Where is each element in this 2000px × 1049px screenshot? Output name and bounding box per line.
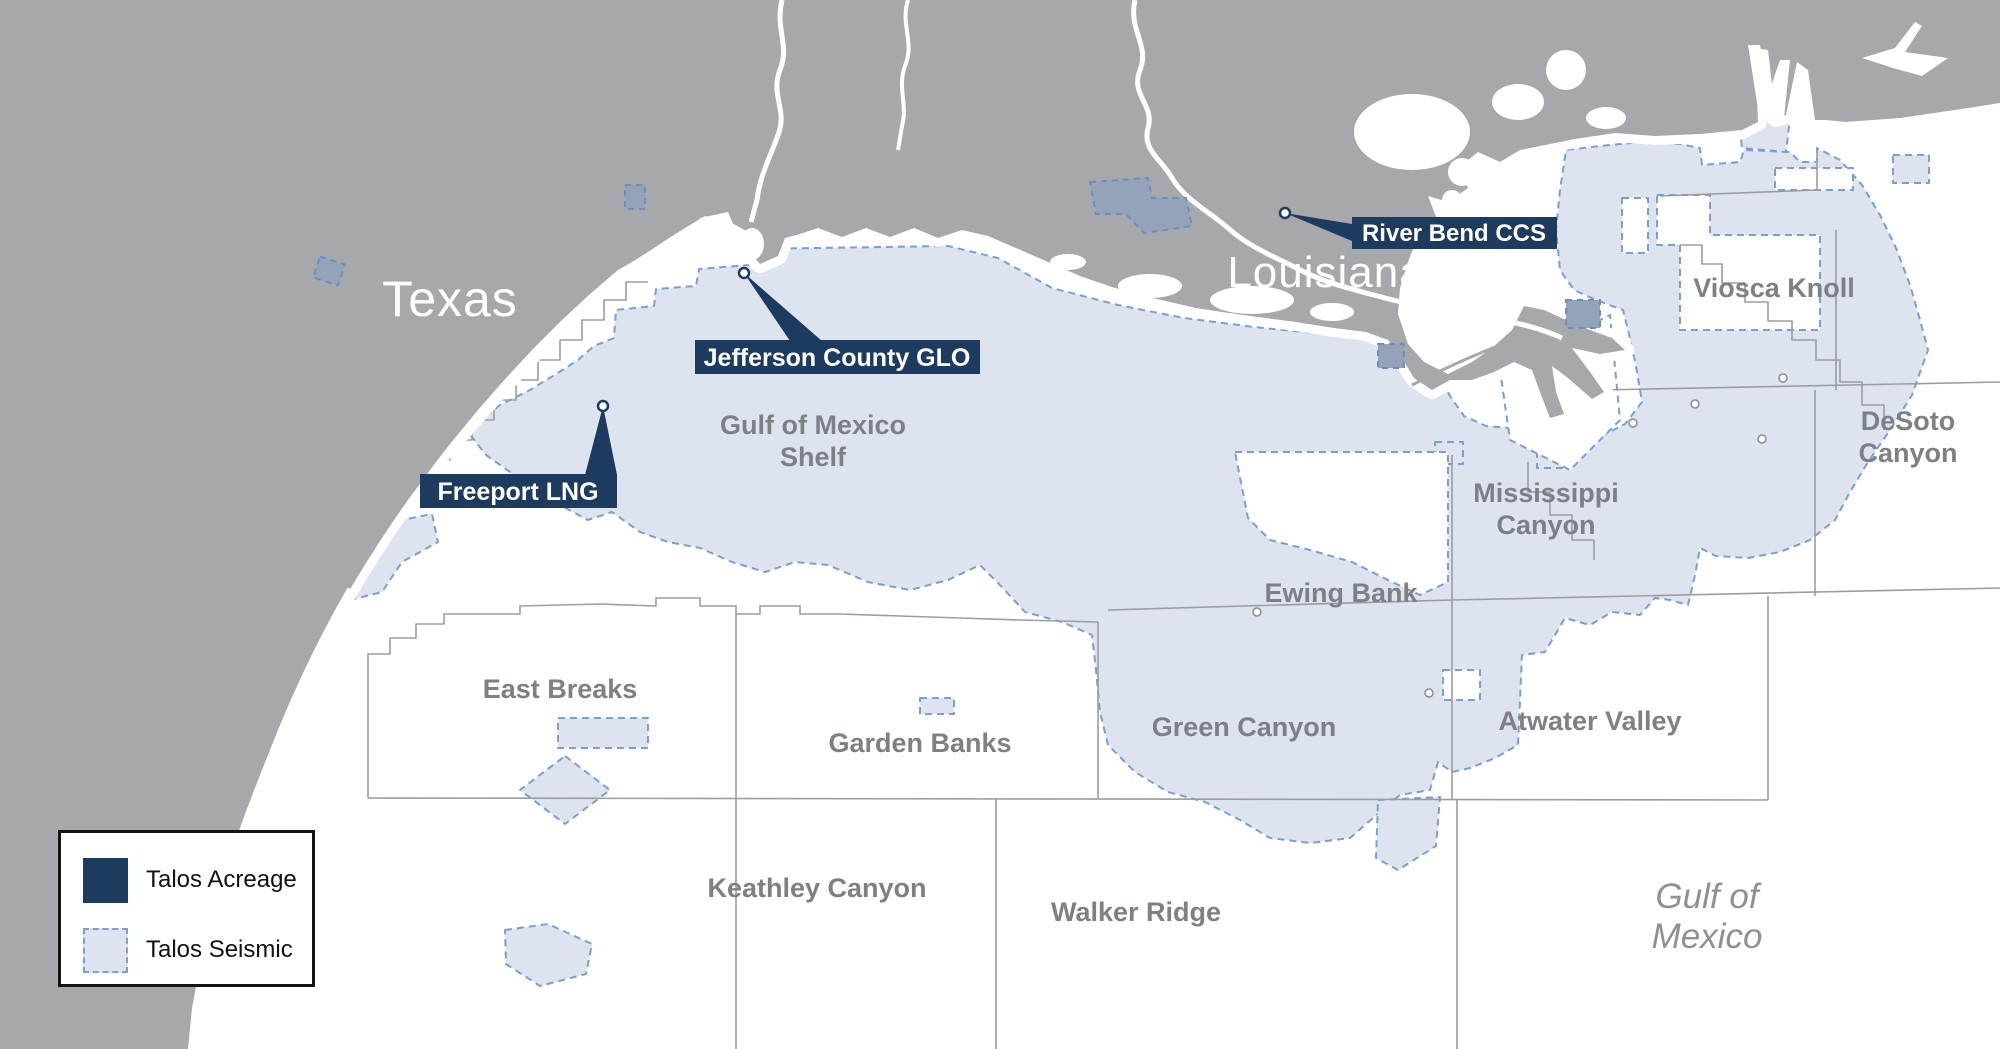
acreage-swatch-icon <box>83 858 128 903</box>
water-hole <box>1622 198 1648 253</box>
callout-label: River Bend CCS <box>1362 220 1546 247</box>
callout-label: Jefferson County GLO <box>704 344 971 372</box>
sabine-lake <box>740 228 764 260</box>
area-label-desoto-2: Canyon <box>1858 438 1957 468</box>
lake <box>1492 84 1544 120</box>
legend-item-seismic: Talos Seismic <box>83 927 293 973</box>
callout-label: Freeport LNG <box>437 478 598 506</box>
point-marker <box>1779 374 1787 382</box>
point-marker <box>1691 400 1699 408</box>
area-label-green-canyon: Green Canyon <box>1152 712 1337 742</box>
area-label-garden-banks: Garden Banks <box>828 728 1011 758</box>
seismic-patch-onland <box>1378 344 1404 368</box>
point-marker <box>1425 689 1433 697</box>
area-label-gom-shelf: Gulf of Mexico <box>720 410 906 440</box>
map-legend: Talos Acreage Talos Seismic <box>58 830 315 987</box>
area-label-atwater-valley: Atwater Valley <box>1498 706 1681 736</box>
area-label-mississippi-canyon-2: Canyon <box>1496 510 1595 540</box>
callout-marker <box>739 268 749 278</box>
area-label-ewing-bank: Ewing Bank <box>1264 578 1418 608</box>
point-marker <box>1629 419 1637 427</box>
legend-label: Talos Acreage <box>146 866 297 894</box>
area-label-keathley-canyon: Keathley Canyon <box>707 873 926 903</box>
seismic-piece <box>1893 155 1929 183</box>
callout-marker <box>1280 208 1290 218</box>
lake-pontchartrain <box>1354 94 1470 170</box>
coastal-inlet <box>1310 303 1354 321</box>
water-hole <box>1775 168 1853 190</box>
legend-item-acreage: Talos Acreage <box>83 857 297 903</box>
area-label-east-breaks: East Breaks <box>483 674 638 704</box>
lake <box>1546 50 1586 90</box>
seismic-patch-onland <box>625 185 645 209</box>
gulf-of-mexico-label: Gulf of <box>1655 877 1761 916</box>
lake <box>1586 107 1626 129</box>
area-label-walker-ridge: Walker Ridge <box>1051 897 1221 927</box>
seismic-piece <box>920 698 954 714</box>
callout-marker <box>598 401 608 411</box>
seismic-piece <box>558 718 648 748</box>
area-label-viosca-knoll: Viosca Knoll <box>1693 273 1855 303</box>
marsh-pond <box>1442 190 1462 210</box>
area-label-desoto: DeSoto <box>1861 406 1956 436</box>
legend-label: Talos Seismic <box>146 936 293 964</box>
seismic-patch-onland <box>1566 300 1600 328</box>
state-label-texas: Texas <box>382 271 518 327</box>
marsh-pond <box>1448 158 1476 186</box>
area-label-gom-shelf-2: Shelf <box>780 442 847 472</box>
gulf-of-mexico-label-2: Mexico <box>1652 917 1763 956</box>
coastal-inlet <box>1050 254 1086 270</box>
area-label-mississippi-canyon: Mississippi <box>1473 478 1619 508</box>
state-label-louisiana: Louisiana <box>1227 248 1424 297</box>
water-hole <box>1443 670 1480 700</box>
point-marker <box>1758 435 1766 443</box>
seismic-swatch-icon <box>83 928 128 973</box>
point-marker <box>1253 608 1261 616</box>
gulf-of-mexico-map: Texas Louisiana Gulf of Mexico Shelf Vio… <box>0 0 2000 1049</box>
coastal-inlet <box>1118 274 1182 298</box>
